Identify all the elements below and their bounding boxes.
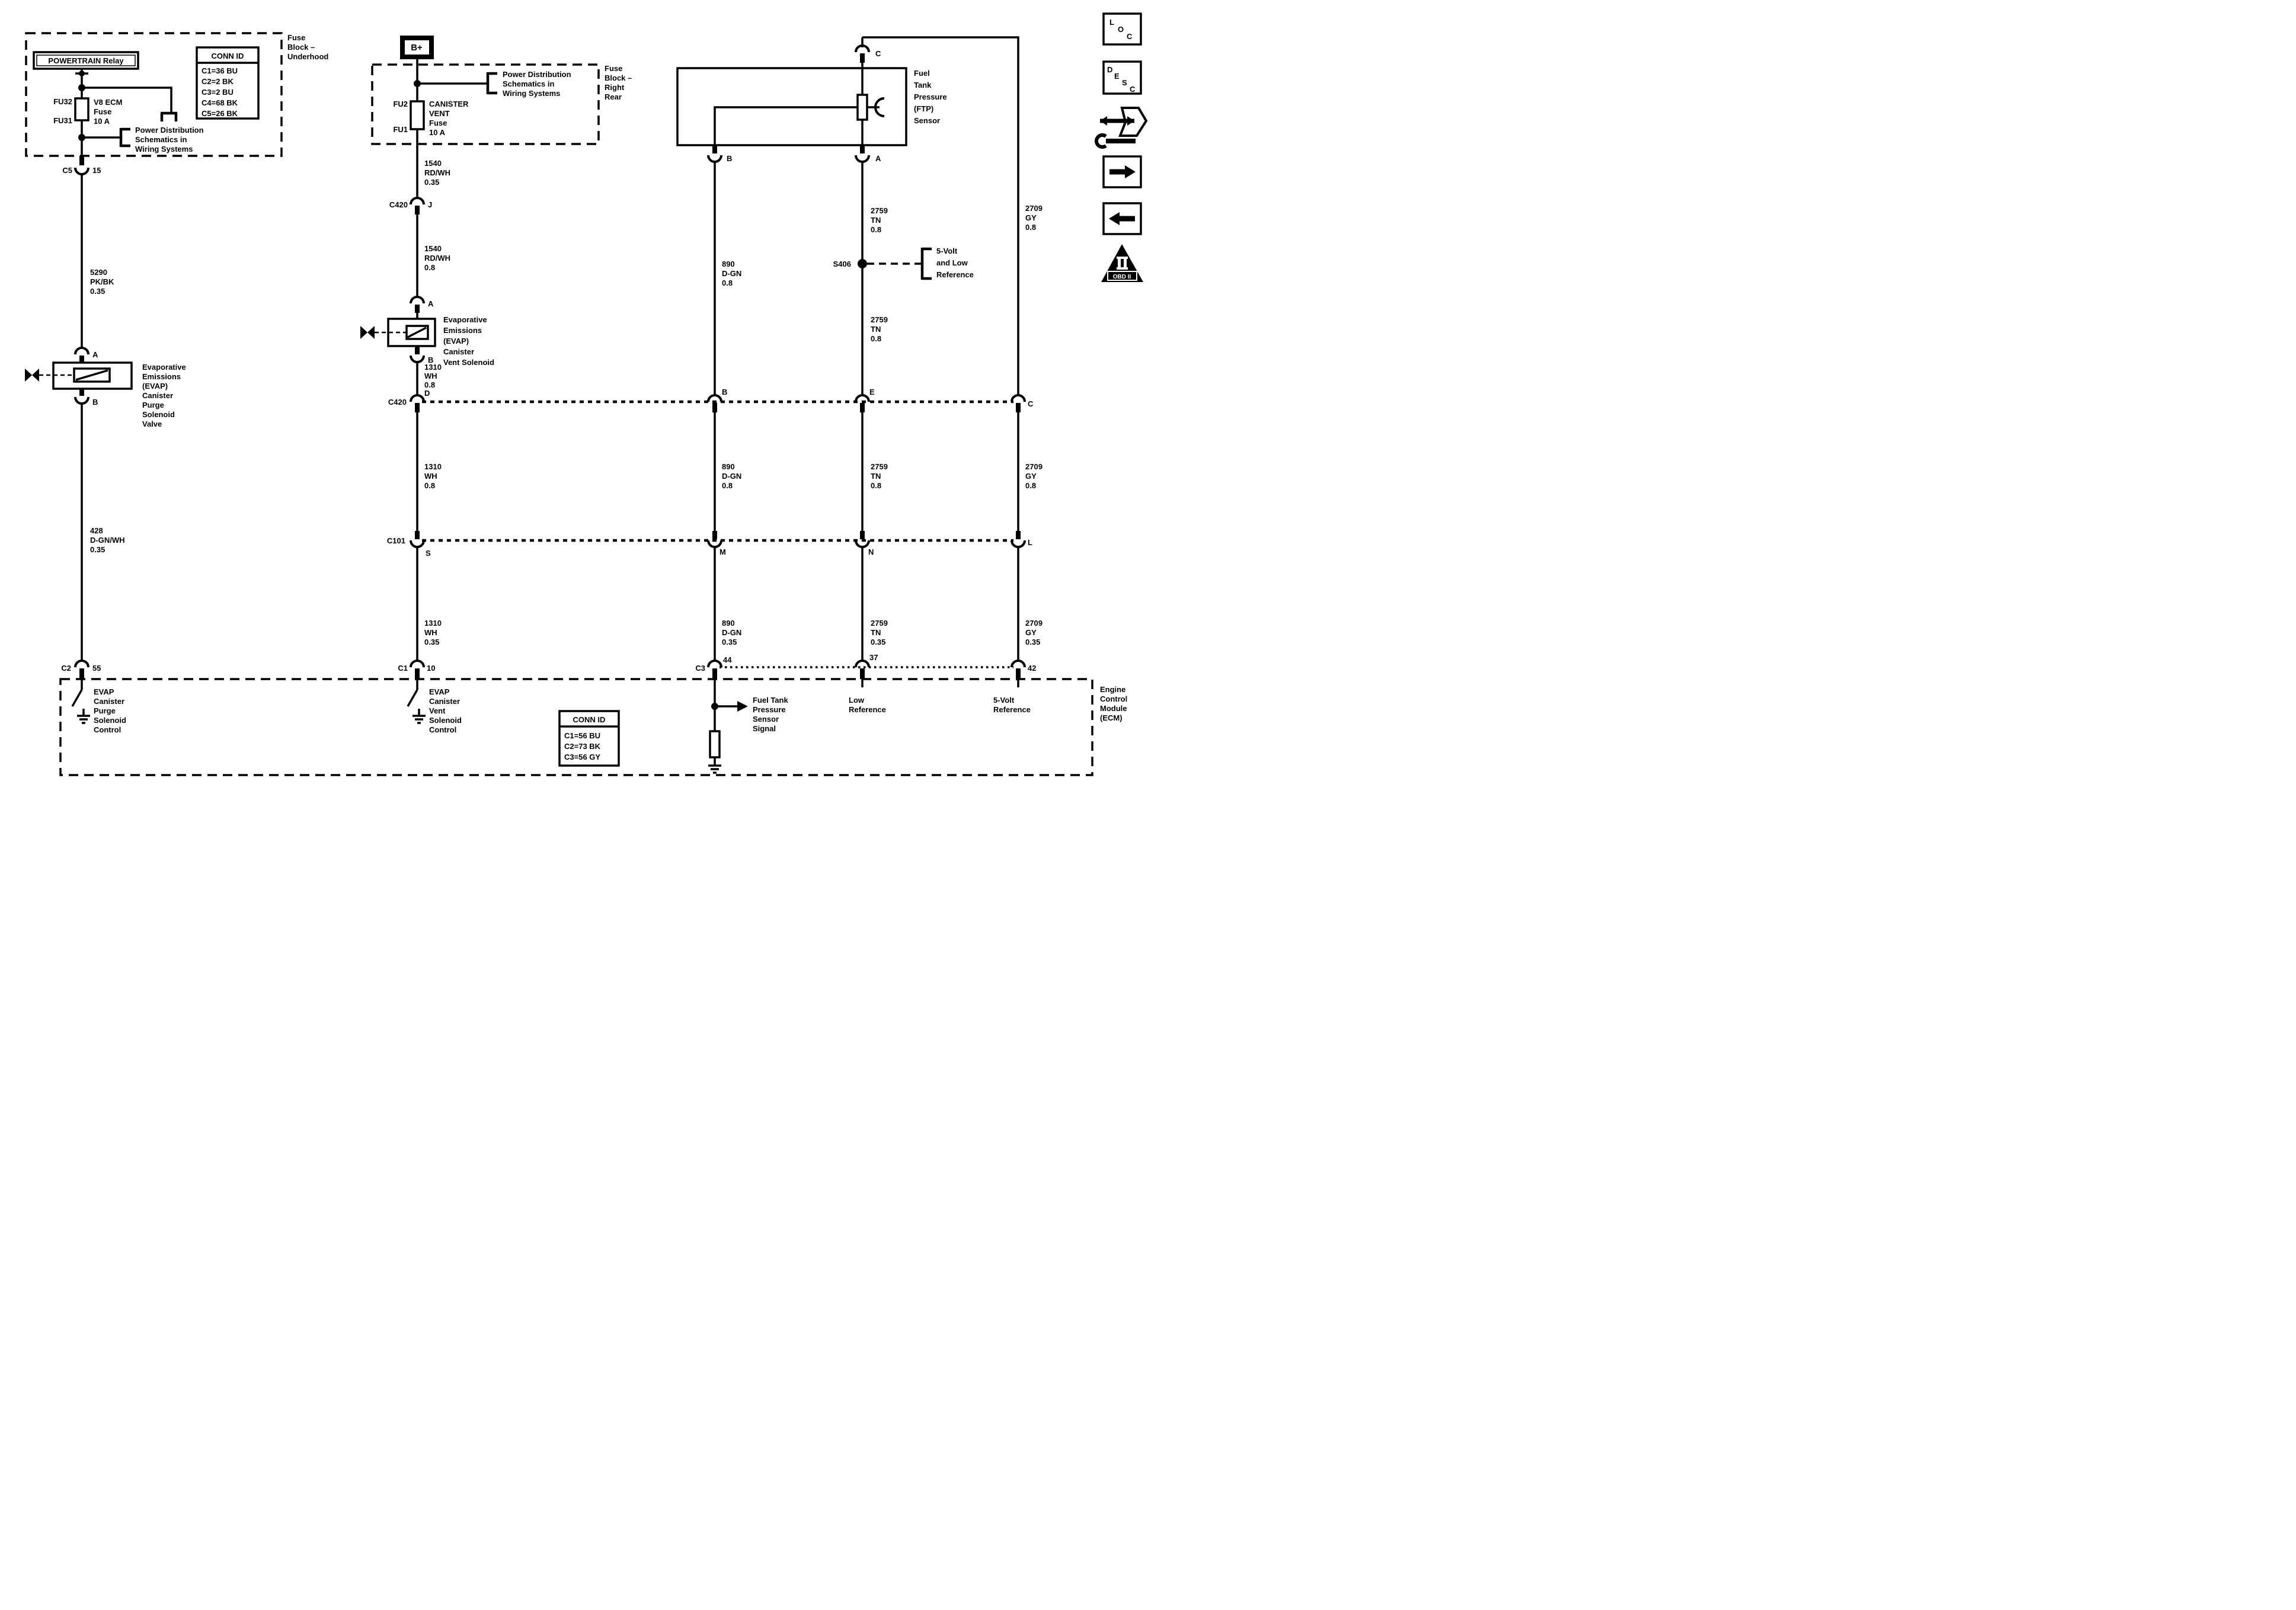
connector-c2-name: C2 bbox=[61, 664, 71, 673]
c420-pin-d: D bbox=[424, 389, 430, 398]
wire-2709-08b-label: 2709GY0.8 bbox=[1025, 462, 1043, 490]
loc-letter-o: O bbox=[1118, 25, 1124, 34]
wire-2709-035-label: 2709GY0.35 bbox=[1025, 619, 1043, 646]
wire-428-label: 428D-GN/WH0.35 bbox=[90, 526, 125, 554]
conn-id-ecm-title: CONN ID bbox=[573, 715, 606, 724]
pillar-column bbox=[1118, 259, 1121, 267]
low-ref-label: LowReference bbox=[849, 696, 886, 714]
ecm-label: EngineControlModule(ECM) bbox=[1100, 685, 1127, 722]
conn-id-underhood-title: CONN ID bbox=[212, 52, 244, 60]
bplus-label: B+ bbox=[411, 43, 423, 53]
driver-switch bbox=[408, 690, 417, 706]
loc-button[interactable]: L O C bbox=[1104, 14, 1141, 44]
wire-1310-08b-label: 1310WH0.8 bbox=[424, 462, 442, 490]
fuse-block-underhood: FuseBlock –Underhood POWERTRAIN Relay CO… bbox=[26, 33, 328, 156]
wiring-diagram-page: FuseBlock –Underhood POWERTRAIN Relay CO… bbox=[0, 0, 1148, 805]
pot-resistor bbox=[858, 95, 867, 120]
obd2-badge: OBD II bbox=[1101, 244, 1143, 282]
connector-arc bbox=[75, 348, 88, 354]
wire-1540-08-label: 1540RD/WH0.8 bbox=[424, 244, 450, 272]
desc-letter-s: S bbox=[1122, 78, 1127, 87]
conn-id-table-ecm: CONN ID C1=56 BUC2=73 BKC3=56 GY bbox=[559, 711, 619, 766]
mid-harness-segment: 1310WH0.8 890D-GN0.8 2759TN0.8 2709GY0.8 bbox=[417, 412, 1043, 532]
ftp-sensor-label: FuelTankPressure(FTP)Sensor bbox=[914, 69, 947, 125]
wire-1310-035-label: 1310WH0.35 bbox=[424, 619, 442, 646]
obd2-label: OBD II bbox=[1113, 274, 1131, 280]
inline-connector-row-c101: C101 S M N L bbox=[387, 531, 1032, 558]
connector-arc bbox=[411, 198, 424, 204]
c101-row-name: C101 bbox=[387, 536, 405, 545]
connector-arc bbox=[411, 297, 424, 303]
connector-c3-name: C3 bbox=[695, 664, 705, 673]
fuse-fu31-label: FU31 bbox=[53, 116, 72, 125]
fuse-name-underhood: V8 ECMFuse10 A bbox=[94, 98, 122, 126]
ecm-pin-row: C1 10 C3 44 37 42 bbox=[398, 653, 1036, 679]
right-ref-bracket bbox=[121, 128, 130, 147]
forward-arrow-button[interactable] bbox=[1104, 156, 1141, 187]
connector-c5-name: C5 bbox=[62, 166, 72, 175]
fuse-name-right-rear: CANISTERVENTFuse10 A bbox=[429, 100, 469, 137]
loc-letter-c: C bbox=[1127, 32, 1133, 41]
connector-arc bbox=[708, 661, 721, 667]
power-dist-ref-underhood: Power DistributionSchematics inWiring Sy… bbox=[135, 126, 204, 153]
c3-pin-44: 44 bbox=[723, 655, 732, 664]
connector-arc bbox=[411, 395, 424, 402]
evap-wiring-diagram: FuseBlock –Underhood POWERTRAIN Relay CO… bbox=[0, 0, 1148, 805]
c3-pin-42: 42 bbox=[1028, 664, 1036, 673]
connector-arc bbox=[1012, 395, 1025, 402]
fuse-fu32-label: FU32 bbox=[53, 97, 72, 106]
wire-2709-08a-label: 2709GY0.8 bbox=[1025, 204, 1043, 232]
vent-solenoid-label: EvaporativeEmissions(EVAP)CanisterVent S… bbox=[443, 315, 494, 367]
wire-890-08a-label: 890D-GN0.8 bbox=[722, 260, 741, 287]
vent-pin-a: A bbox=[428, 299, 434, 308]
fuse-symbol-right-rear bbox=[411, 101, 424, 129]
battery-feed: B+ bbox=[400, 36, 434, 59]
ftp-pin-a: A bbox=[875, 154, 881, 163]
connector-arc bbox=[411, 356, 424, 362]
inline-connector-row-c420: C420 D B E C bbox=[388, 388, 1034, 412]
connector-arc bbox=[75, 661, 88, 667]
desc-letter-c: C bbox=[1130, 85, 1136, 94]
purge-solenoid-label: EvaporativeEmissions(EVAP)CanisterPurgeS… bbox=[142, 363, 186, 428]
wire-2759-08c-label: 2759TN0.8 bbox=[871, 462, 888, 490]
connector-c5-pin: 15 bbox=[92, 166, 101, 175]
fuse-symbol-underhood bbox=[75, 98, 88, 120]
wire-2759-035-label: 2759TN0.35 bbox=[871, 619, 888, 646]
wire-2759-08a-label: 2759TN0.8 bbox=[871, 206, 888, 234]
right-ref-bracket bbox=[922, 248, 932, 280]
connector-arc bbox=[75, 168, 88, 174]
purge-pin-b: B bbox=[92, 398, 98, 406]
sidebar-icons: L O C D E S C bbox=[1096, 14, 1146, 282]
loc-letter-l: L bbox=[1109, 18, 1114, 27]
fuse-block-right-rear-label: FuseBlock –RightRear bbox=[605, 64, 632, 101]
connector-arc bbox=[1012, 661, 1025, 667]
valve-icon bbox=[360, 326, 367, 339]
wire-5290-label: 5290PK/BK0.35 bbox=[90, 268, 114, 296]
valve-icon bbox=[32, 369, 39, 382]
c420-row-name: C420 bbox=[388, 398, 407, 406]
ground-icon bbox=[412, 716, 426, 723]
ftp-signal-label: Fuel TankPressureSensorSignal bbox=[753, 696, 788, 733]
connector-arc bbox=[856, 46, 869, 52]
valve-icon bbox=[367, 326, 375, 339]
desc-letter-e: E bbox=[1114, 72, 1120, 81]
connector-c5: C5 15 bbox=[62, 156, 101, 175]
five-v-ref-label: 5-VoltReference bbox=[993, 696, 1031, 714]
ftp-sensor: FuelTankPressure(FTP)Sensor C B A bbox=[677, 37, 1018, 396]
connector-arc bbox=[411, 540, 424, 547]
wire-1310-08a-label: 1310WH0.8 bbox=[424, 363, 442, 389]
diagnostic-tool-icon[interactable] bbox=[1096, 108, 1146, 147]
five-volt-low-ref-label: 5-Voltand LowReference bbox=[936, 247, 974, 279]
conn-id-table-underhood: CONN ID C1=36 BUC2=2 BKC3=2 BUC4=68 BKC5… bbox=[197, 47, 258, 119]
right-ref-bracket bbox=[488, 72, 497, 94]
connector-c1-name: C1 bbox=[398, 664, 408, 673]
wrench-jaw bbox=[1096, 135, 1106, 147]
connector-arc bbox=[75, 397, 88, 404]
ecm-ftp-signal: Fuel TankPressureSensorSignal bbox=[708, 679, 788, 773]
connector-c2-pin: 55 bbox=[92, 664, 101, 673]
pillar-cap bbox=[1117, 257, 1128, 259]
connector-c420j-name: C420 bbox=[389, 200, 408, 209]
sensor-wiring-columns: 890D-GN0.8 2759TN0.8 2709GY0.8 S406 5-Vo… bbox=[715, 161, 1043, 396]
fuse-block-right-rear: B+ FuseBlock –RightRear Power Distributi… bbox=[372, 36, 632, 144]
purge-pin-a: A bbox=[92, 350, 98, 359]
splice-s406-dot bbox=[858, 259, 867, 268]
c420-pin-c: C bbox=[1028, 399, 1034, 408]
power-dist-ref-right-rear: Power DistributionSchematics inWiring Sy… bbox=[503, 70, 571, 98]
fuse-fu1-label: FU1 bbox=[393, 125, 408, 134]
connector-arc bbox=[1012, 540, 1025, 547]
purge-circuit: 5290PK/BK0.35 A EvaporativeEmissions(EVA… bbox=[25, 174, 186, 734]
ftp-pin-c: C bbox=[875, 49, 881, 58]
junction-dot bbox=[79, 71, 85, 76]
vent-circuit: 1540RD/WH0.35 C420 J 1540RD/WH0.8 A Evap… bbox=[360, 144, 494, 396]
back-arrow-button[interactable] bbox=[1104, 203, 1141, 234]
connector-arc bbox=[411, 661, 424, 667]
powertrain-relay-label: POWERTRAIN Relay bbox=[48, 56, 124, 65]
ecm-module: EngineControlModule(ECM) EVAPCanisterVen… bbox=[60, 679, 1127, 775]
signal-arrow-icon bbox=[737, 701, 748, 712]
fuse-fu2-label: FU2 bbox=[393, 100, 408, 108]
splice-s406-label: S406 bbox=[833, 260, 851, 268]
desc-letter-d: D bbox=[1107, 65, 1112, 74]
c420-pin-e: E bbox=[869, 388, 875, 396]
pillar-base bbox=[1117, 267, 1128, 270]
conn-id-underhood-rows: C1=36 BUC2=2 BKC3=2 BUC4=68 BKC5=26 BK bbox=[202, 66, 238, 118]
connector-c1-pin: 10 bbox=[427, 664, 435, 673]
double-arrow-left-head bbox=[1100, 116, 1107, 126]
connector-arc bbox=[856, 155, 869, 162]
desc-button[interactable]: D E S C bbox=[1104, 62, 1141, 94]
c101-pin-m: M bbox=[720, 548, 726, 556]
c3-pin-37: 37 bbox=[869, 653, 878, 662]
fuse-block-underhood-label: FuseBlock –Underhood bbox=[287, 33, 328, 61]
wire-890-08b-label: 890D-GN0.8 bbox=[722, 462, 741, 490]
down-ref-bracket bbox=[161, 113, 177, 121]
ecm-vent-control-label: EVAPCanisterVentSolenoidControl bbox=[429, 687, 462, 734]
ecm-purge-control-label: EVAPCanisterPurgeSolenoidControl bbox=[94, 687, 126, 734]
wire-1540-035-label: 1540RD/WH0.35 bbox=[424, 159, 450, 187]
driver-switch bbox=[72, 690, 82, 706]
c101-pin-s: S bbox=[426, 549, 431, 558]
ground-icon bbox=[77, 716, 90, 723]
connector-c420j-pin: J bbox=[428, 200, 432, 209]
wire-2759-08b-label: 2759TN0.8 bbox=[871, 315, 888, 343]
lower-harness-segment: 1310WH0.35 890D-GN0.35 2759TN0.35 2709GY… bbox=[417, 548, 1043, 661]
pullup-resistor bbox=[710, 731, 720, 757]
connector-arc bbox=[708, 155, 721, 162]
wire-890-035-label: 890D-GN0.35 bbox=[722, 619, 741, 646]
ftp-pin-b: B bbox=[727, 154, 732, 163]
ecm-vent-driver: EVAPCanisterVentSolenoidControl bbox=[408, 679, 462, 734]
ground-icon bbox=[708, 766, 721, 773]
conn-id-ecm-rows: C1=56 BUC2=73 BKC3=56 GY bbox=[564, 731, 601, 761]
c420-pin-b: B bbox=[722, 388, 727, 396]
pillar-column bbox=[1124, 259, 1127, 267]
c101-pin-l: L bbox=[1028, 538, 1032, 547]
valve-icon bbox=[25, 369, 32, 382]
connector-arc bbox=[856, 661, 869, 667]
c101-pin-n: N bbox=[868, 548, 874, 556]
